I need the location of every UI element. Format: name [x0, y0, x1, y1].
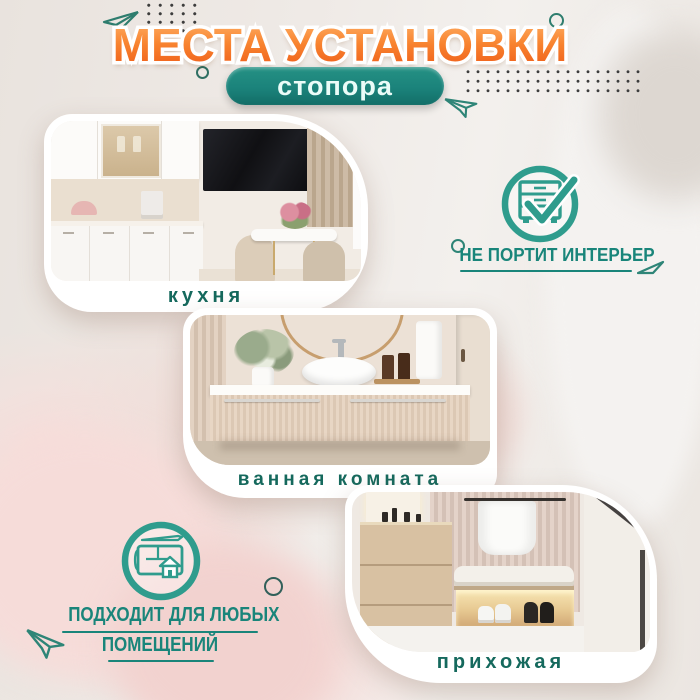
hallway-card: прихожая — [345, 485, 657, 683]
kitchen-chair — [303, 241, 345, 281]
hallway-photo — [352, 492, 650, 652]
feature-rooms-underline — [108, 660, 214, 662]
kitchen-tv — [203, 129, 309, 191]
bathroom-countertop — [210, 385, 470, 395]
feature-interior-underline — [460, 270, 632, 272]
bathroom-soap-bottle — [382, 355, 394, 381]
dresser-checkmark-icon — [494, 158, 594, 254]
bathroom-soap-bottle — [398, 353, 410, 381]
bathroom-tray — [374, 379, 420, 384]
hallway-shoe-shelf — [456, 590, 574, 626]
kitchen-base-cabinets — [51, 226, 203, 281]
kitchen-glass-cabinet — [101, 124, 161, 178]
feature-rooms-underline — [62, 631, 258, 633]
feature-rooms-text-line2: ПОМЕЩЕНИЙ — [68, 634, 252, 657]
hallway-label: прихожая — [345, 651, 657, 674]
kitchen-window — [353, 121, 361, 249]
paper-plane-icon — [442, 86, 482, 123]
kitchen-photo — [51, 121, 361, 281]
hallway-white-sneakers — [478, 606, 494, 623]
bathroom-vanity — [210, 395, 470, 441]
bathroom-sink — [302, 357, 376, 387]
kitchen-dining-table — [251, 229, 337, 241]
bathroom-photo — [190, 315, 490, 465]
kitchen-label: кухня — [44, 285, 368, 308]
blueprint-house-icon — [112, 514, 212, 610]
feature-rooms-text-line1: ПОДХОДИТ ДЛЯ ЛЮБЫХ — [68, 604, 252, 627]
subtitle-badge: стопора — [226, 67, 444, 105]
hallway-black-shoes — [524, 602, 538, 623]
bathroom-shadow — [220, 441, 460, 450]
kitchen-card: кухня — [44, 114, 368, 312]
hallway-hanging-shirt — [478, 501, 536, 555]
circle-outline-icon — [264, 577, 283, 596]
hallway-bench-cushion — [454, 566, 574, 586]
kitchen-chair — [235, 235, 275, 281]
bathroom-door-handle — [461, 349, 465, 362]
hallway-door-edge — [640, 550, 645, 652]
hallway-white-sneakers — [495, 604, 511, 623]
paper-plane-icon — [22, 618, 70, 664]
bathroom-card: ванная комната — [183, 308, 497, 498]
infographic-canvas: МЕСТА УСТАНОВКИ МЕСТА УСТАНОВКИ стопора — [0, 0, 700, 700]
kitchen-coffee-machine — [141, 191, 163, 219]
hallway-black-shoes — [540, 602, 554, 623]
feature-interior-text: НЕ ПОРТИТ ИНТЕРЬЕР — [459, 244, 628, 266]
kitchen-flowers — [277, 201, 313, 229]
kitchen-curtains — [307, 121, 353, 227]
page-title-text: МЕСТА УСТАНОВКИ — [100, 18, 580, 72]
bathroom-towel — [416, 321, 442, 379]
